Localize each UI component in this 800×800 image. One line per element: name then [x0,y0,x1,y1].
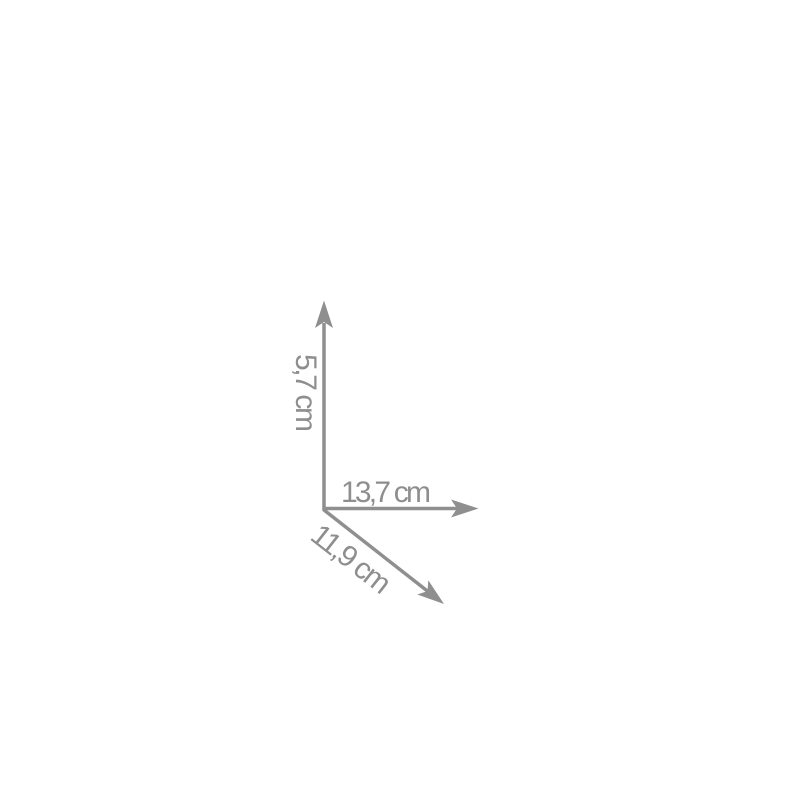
width-dimension-label: 13,7 cm [341,476,431,509]
dimension-diagram-canvas: 13,7 cm 5,7 cm 11,9 cm [0,0,800,800]
height-dimension-label: 5,7 cm [289,354,322,432]
depth-arrowhead-icon [417,580,444,604]
dimension-arrows-figure: 13,7 cm 5,7 cm 11,9 cm [0,0,800,800]
measurement-labels: 13,7 cm 5,7 cm 11,9 cm [289,354,431,601]
